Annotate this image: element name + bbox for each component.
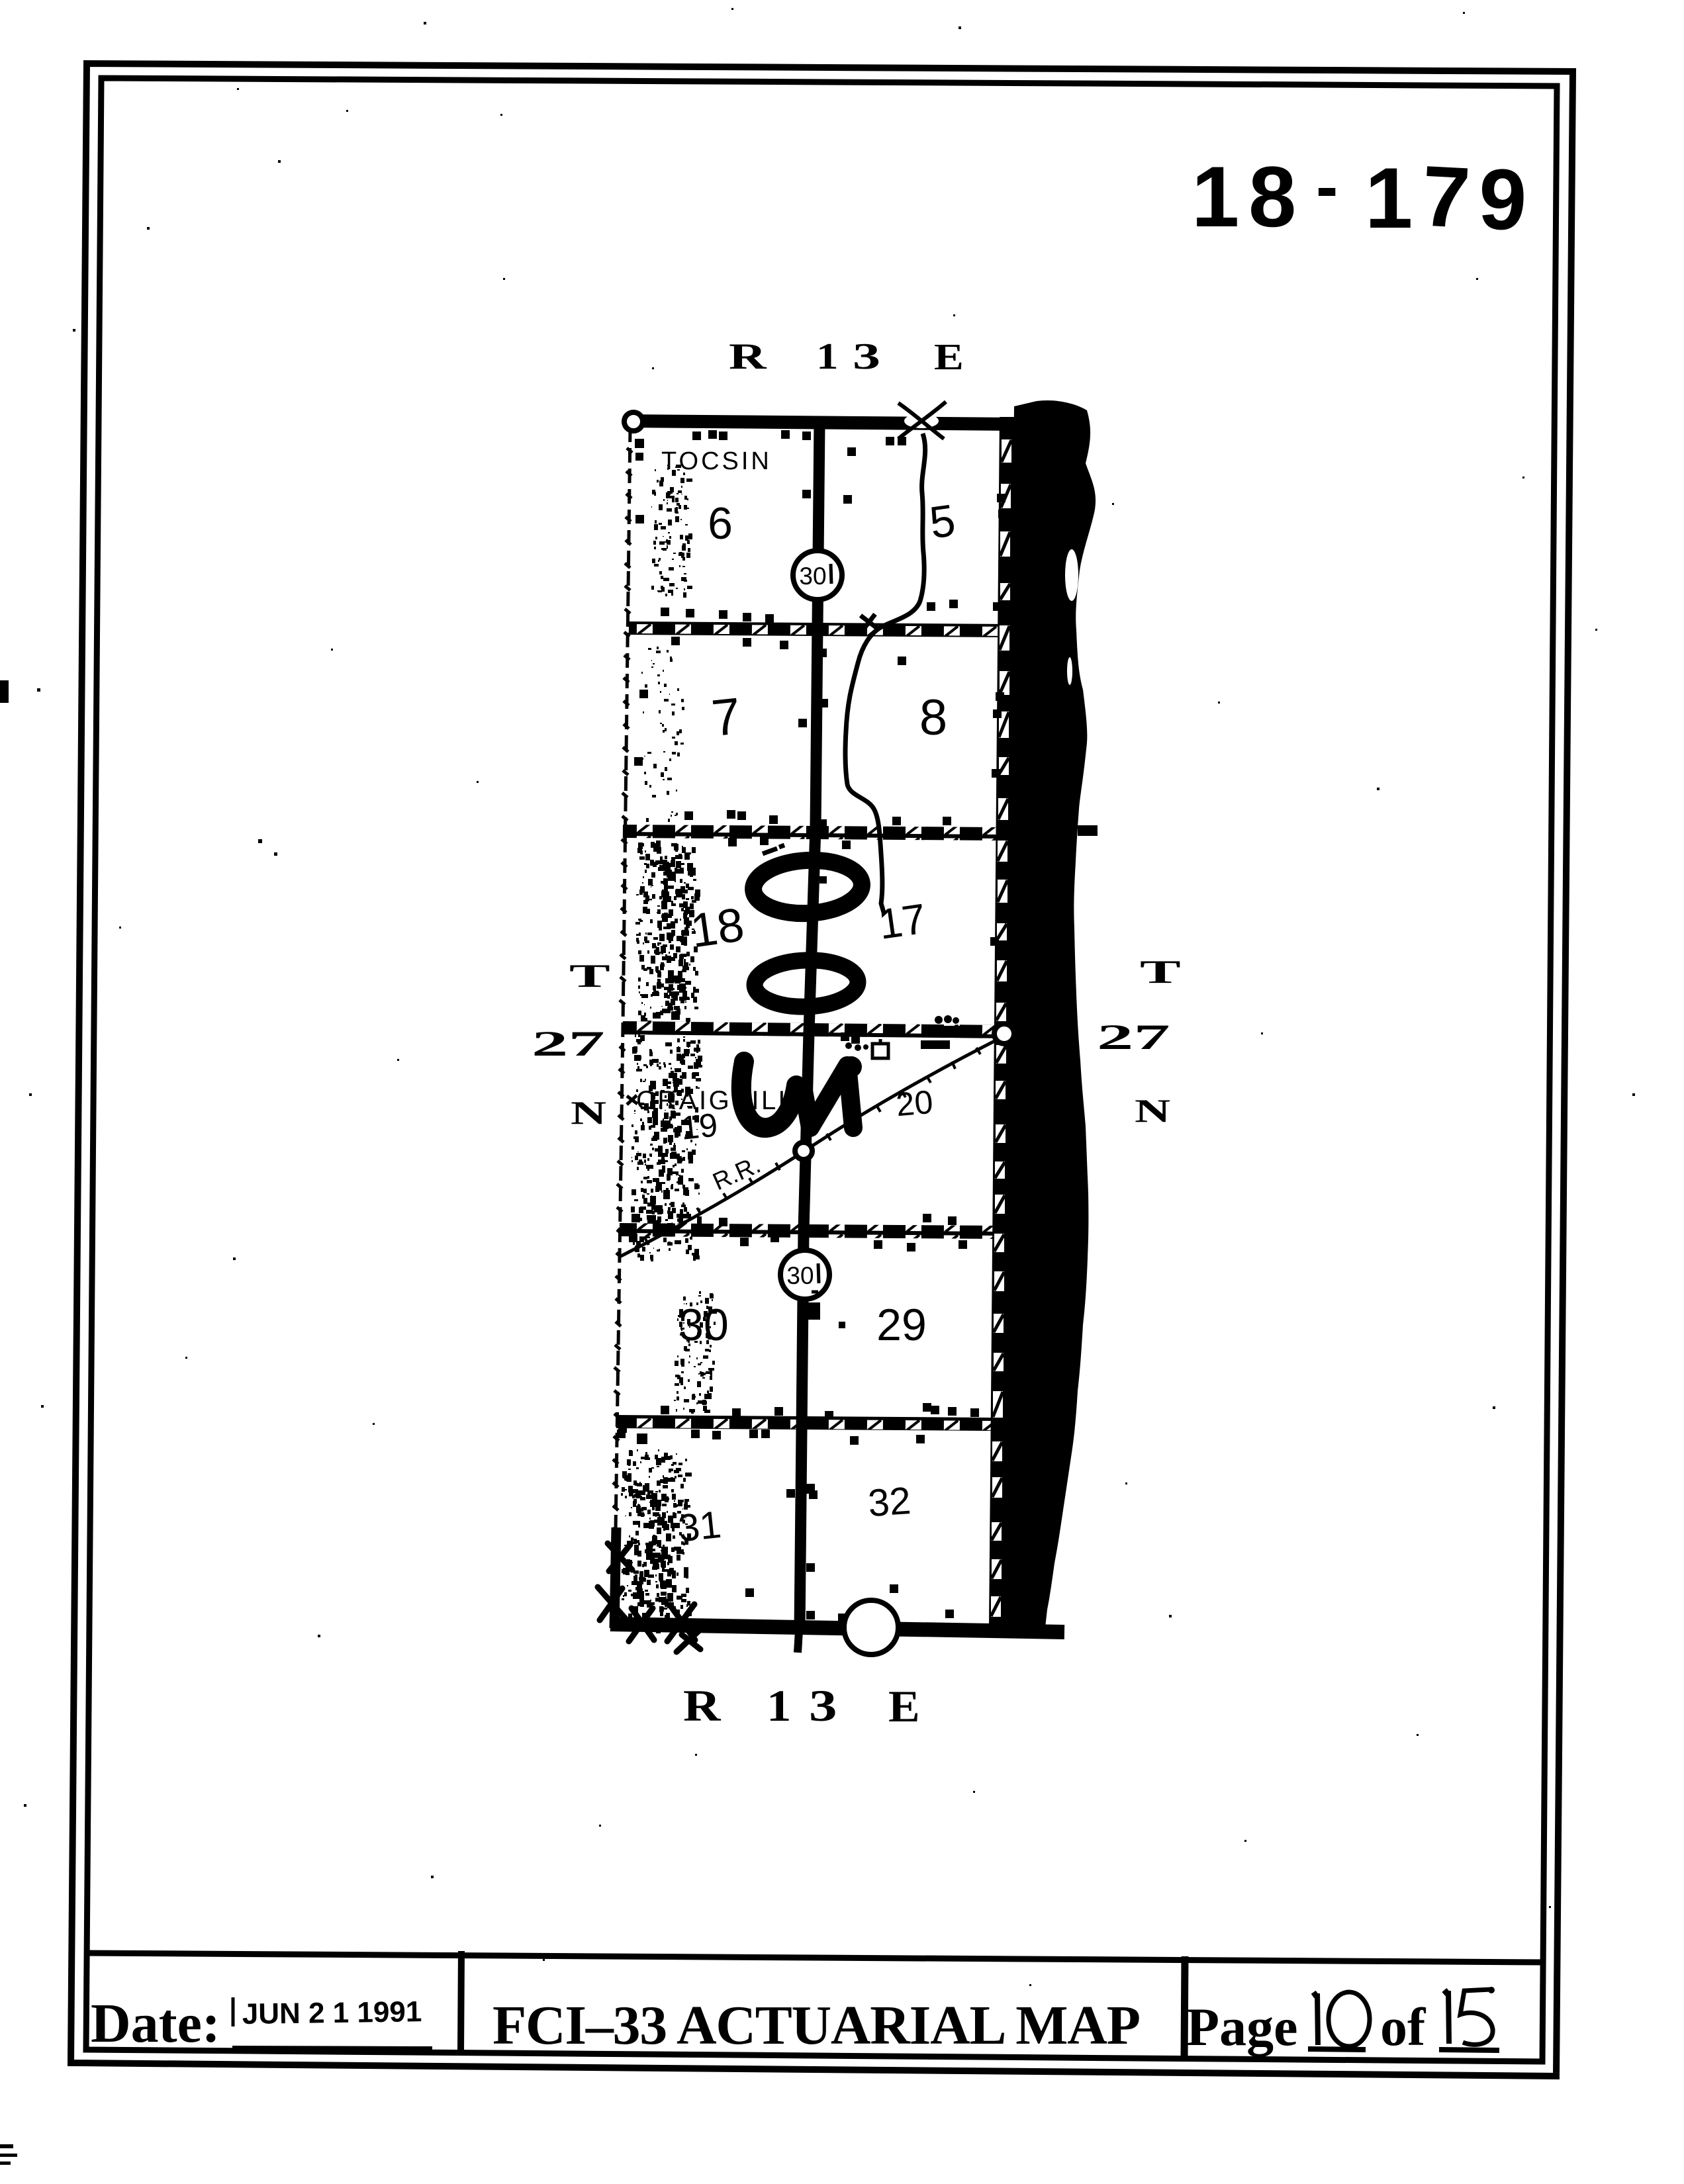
svg-text:7: 7	[709, 686, 743, 747]
svg-text:1: 1	[1192, 148, 1239, 245]
svg-text:30: 30	[786, 1262, 814, 1289]
svg-text:31: 31	[676, 1503, 723, 1550]
svg-text:30: 30	[678, 1300, 729, 1350]
svg-text:FCI–33 ACTUARIAL MAP: FCI–33 ACTUARIAL MAP	[492, 1995, 1141, 2056]
svg-text:R: R	[729, 336, 767, 377]
svg-text:17: 17	[876, 895, 929, 948]
svg-text:3: 3	[809, 1680, 837, 1731]
svg-text:-: -	[1316, 150, 1338, 224]
svg-text:E: E	[934, 337, 964, 378]
svg-text:T: T	[1140, 954, 1181, 990]
svg-text:32: 32	[866, 1479, 912, 1525]
svg-text:20: 20	[894, 1083, 934, 1124]
svg-text:Date:: Date:	[91, 1993, 220, 2054]
svg-text:8: 8	[1248, 148, 1296, 245]
svg-text:7: 7	[1419, 147, 1472, 246]
svg-text:of: of	[1380, 1997, 1427, 2057]
svg-text:27: 27	[532, 1024, 605, 1064]
svg-text:1: 1	[816, 336, 839, 377]
svg-text:TOCSIN: TOCSIN	[661, 447, 772, 475]
svg-text:3: 3	[853, 336, 880, 377]
svg-text:R: R	[683, 1681, 722, 1731]
svg-text:27: 27	[1097, 1017, 1170, 1057]
svg-text:N: N	[1135, 1092, 1170, 1129]
svg-text:18: 18	[687, 898, 747, 958]
svg-text:Page: Page	[1186, 1997, 1297, 2057]
svg-text:1: 1	[767, 1681, 791, 1731]
svg-text:30: 30	[799, 563, 826, 590]
svg-text:1: 1	[1365, 150, 1413, 246]
svg-text:CRAIGVILLE: CRAIGVILLE	[636, 1086, 816, 1115]
svg-text:JUN 2 1 1991: JUN 2 1 1991	[242, 1995, 422, 2030]
svg-text:N: N	[571, 1094, 606, 1131]
svg-text:T: T	[569, 958, 610, 994]
svg-text:E: E	[888, 1682, 920, 1732]
svg-text:9: 9	[1477, 150, 1528, 248]
svg-text:29: 29	[876, 1300, 927, 1350]
svg-text:6: 6	[708, 498, 733, 549]
svg-text:8: 8	[919, 690, 947, 746]
